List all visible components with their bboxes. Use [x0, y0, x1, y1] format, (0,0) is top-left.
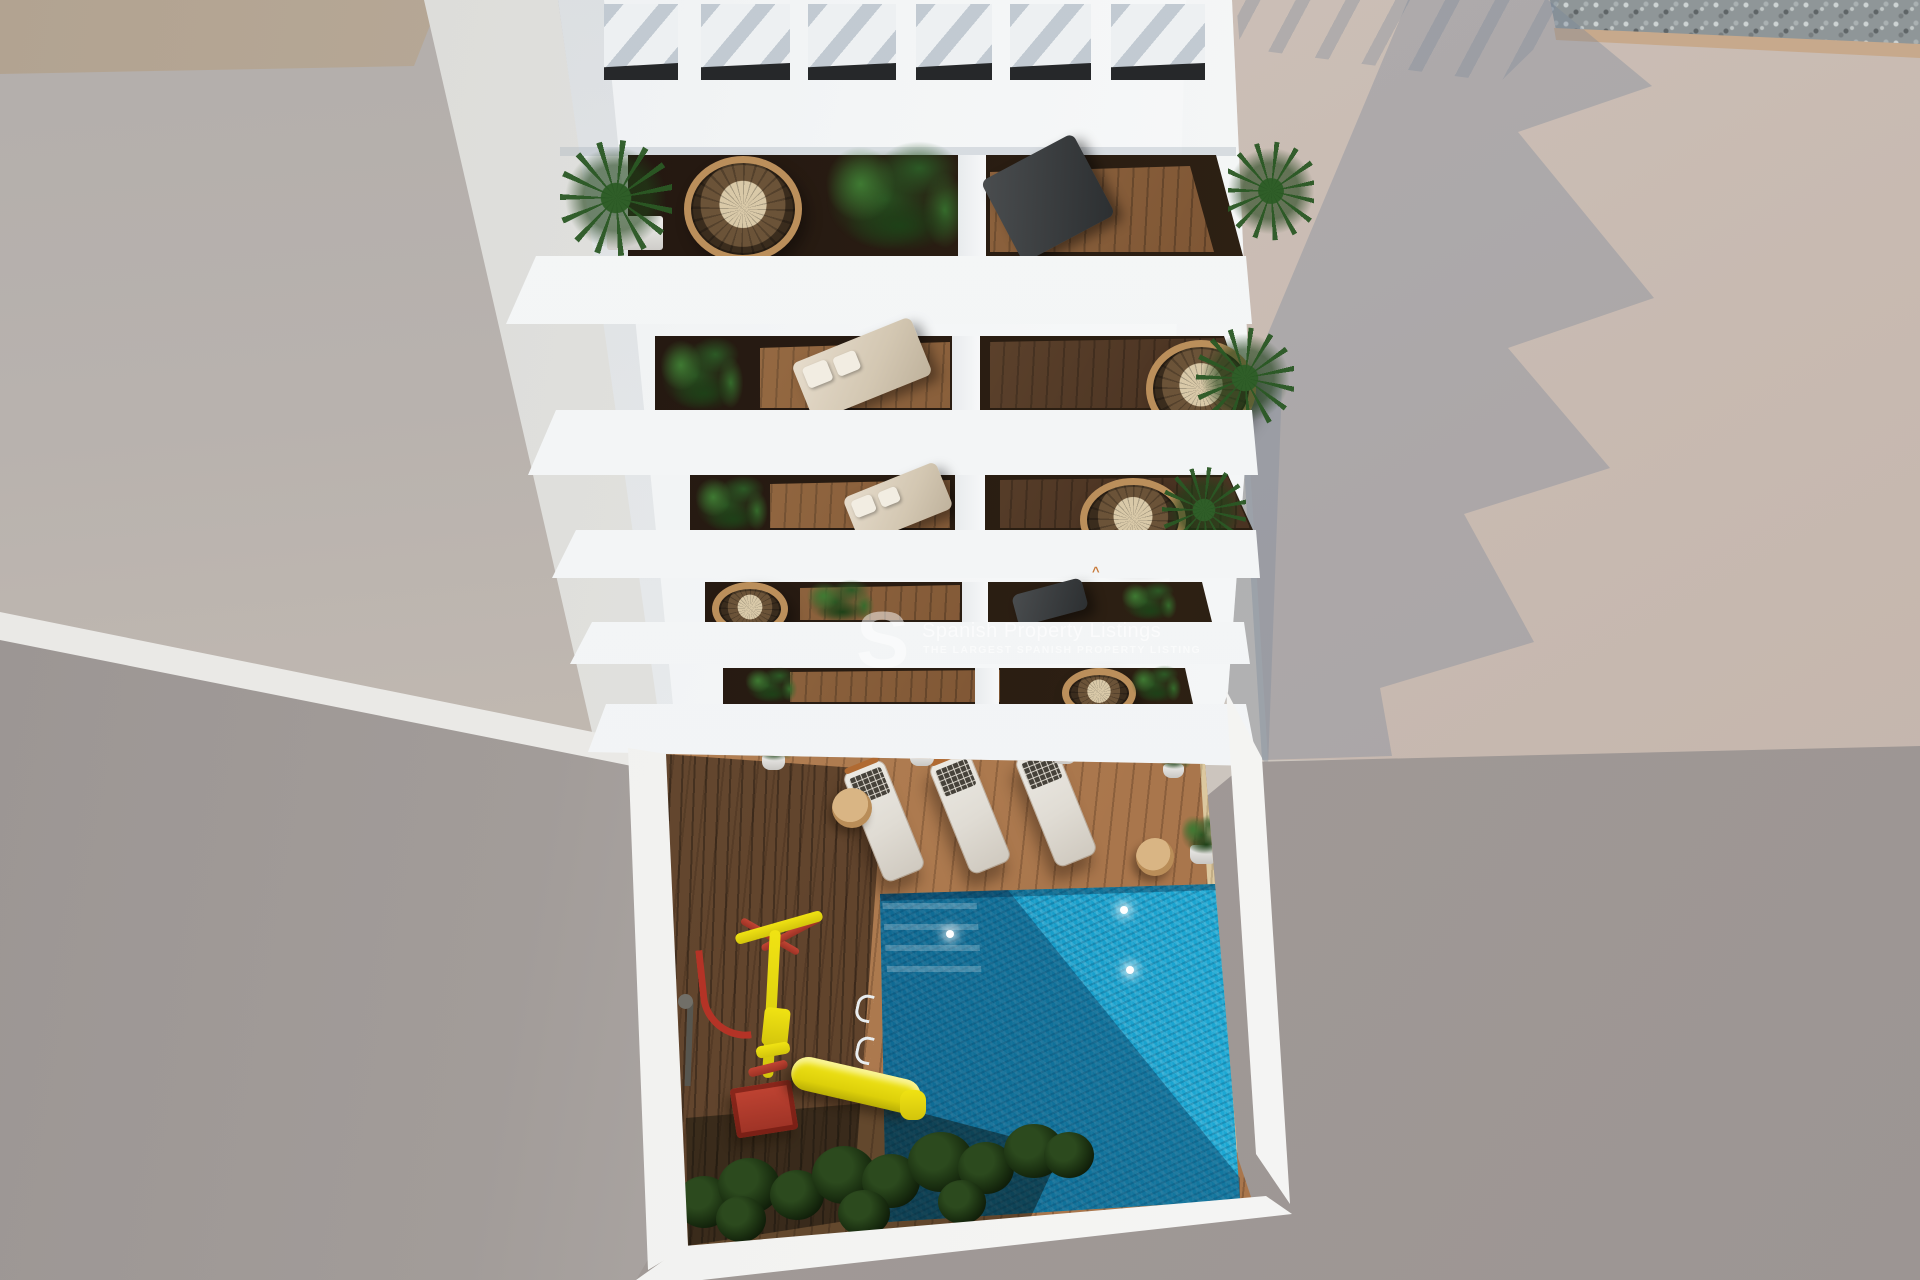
pillow	[832, 350, 862, 378]
green-plant	[1126, 662, 1184, 706]
playground-box-seat	[729, 1079, 798, 1138]
bush	[1044, 1132, 1094, 1178]
green-plant	[812, 132, 974, 262]
skylight-glass	[916, 63, 992, 80]
skylight-glass	[1111, 63, 1205, 80]
skylight-glass	[701, 63, 790, 80]
palm-plant	[560, 138, 672, 258]
bush	[938, 1180, 986, 1224]
outdoor-shower-head	[678, 994, 693, 1009]
render-canvas: ^ S Spanish Property Listings THE LARGES…	[0, 0, 1920, 1280]
pillow	[850, 494, 877, 519]
pergola-gap	[701, 4, 790, 80]
balcony-divider-wall	[958, 155, 986, 256]
pergola-gap	[604, 4, 678, 80]
skylight-glass	[1010, 63, 1091, 80]
balcony-divider-wall	[952, 336, 980, 410]
palm-plant	[1228, 136, 1314, 246]
watermark-logo: S	[856, 600, 909, 680]
balcony-divider-wall	[955, 475, 985, 530]
pillow	[801, 359, 833, 389]
pergola-gap	[1010, 4, 1091, 80]
round-side-table	[1136, 838, 1174, 876]
green-plant	[1116, 578, 1180, 624]
pergola-gap	[916, 4, 992, 80]
green-plant	[688, 470, 772, 538]
slide-end	[900, 1090, 926, 1120]
pool-light	[946, 930, 954, 938]
green-plant	[652, 330, 748, 418]
round-side-table	[832, 788, 872, 828]
bush	[716, 1196, 766, 1242]
green-plant	[740, 664, 800, 706]
balcony-divider-wall	[962, 582, 988, 622]
pergola-gap	[808, 4, 896, 80]
pool-light	[1126, 966, 1134, 974]
watermark-title: Spanish Property Listings	[922, 620, 1161, 643]
balcony-divider-wall	[975, 668, 999, 704]
skylight-glass	[604, 63, 678, 80]
rattan-chair	[684, 156, 802, 262]
lounger-headrest	[935, 758, 977, 797]
pergola-gap	[1111, 4, 1205, 80]
pool-light	[1120, 906, 1128, 914]
pillow	[877, 486, 902, 508]
skylight-glass	[808, 63, 896, 80]
watermark-subtitle: THE LARGEST SPANISH PROPERTY LISTING	[923, 644, 1201, 656]
caret-mark: ^	[1092, 564, 1100, 579]
